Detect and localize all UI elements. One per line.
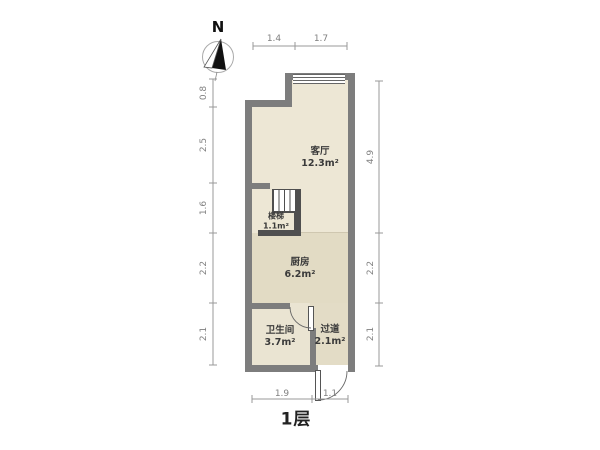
dimension-chain-bottom [252, 395, 348, 403]
wall-bathroom-top [245, 303, 290, 309]
room-area-kitchen: 6.2m² [285, 269, 316, 281]
stair-wall-bottom [258, 230, 301, 236]
room-area-bathroom: 3.7m² [265, 337, 296, 349]
dimension-chain-top [253, 42, 347, 50]
wall-stair-stub [252, 183, 270, 189]
room-name-hallway: 过道 [315, 324, 346, 336]
stair-treads [272, 189, 297, 213]
dim-bottom-2: 1.1 [323, 389, 337, 399]
room-name-living: 客厅 [301, 146, 339, 158]
entry-door-leaf [315, 370, 321, 401]
bathroom-door-leaf [308, 306, 314, 331]
room-name-bathroom: 卫生间 [265, 325, 296, 337]
floor-plan-canvas: 1.4 1.7 0.8 2.5 1.6 2.2 2.1 4.9 2.2 2.1 [0, 0, 600, 450]
room-name-stairs: 楼梯 [263, 212, 289, 222]
kitchen-boundary-line [301, 232, 348, 233]
north-arrow-icon [203, 39, 234, 81]
dim-bottom-1: 1.9 [275, 389, 290, 399]
dim-left-5: 2.1 [199, 327, 209, 341]
dim-right-1: 4.9 [366, 150, 376, 165]
dimension-chain-right [375, 81, 383, 366]
room-label-bathroom: 卫生间 3.7m² [265, 325, 296, 349]
window [293, 74, 345, 84]
room-label-kitchen: 厨房 6.2m² [285, 257, 316, 281]
room-label-hallway: 过道 2.1m² [315, 324, 346, 348]
room-area-living: 12.3m² [301, 158, 339, 170]
wall-bottom [245, 365, 318, 372]
dim-right-2: 2.2 [366, 261, 376, 275]
room-area-hallway: 2.1m² [315, 336, 346, 348]
dim-top-1: 1.4 [267, 34, 282, 44]
dim-left-2: 2.5 [199, 138, 209, 152]
dim-left-4: 2.2 [199, 261, 209, 275]
dim-right-3: 2.1 [366, 327, 376, 341]
dimension-chain-left [209, 79, 217, 365]
dim-top-2: 1.7 [314, 34, 328, 44]
dim-left-1: 0.8 [199, 86, 209, 101]
entry-door-arc [318, 371, 347, 400]
north-label: N [212, 18, 225, 36]
wall-left [245, 100, 252, 372]
floor-title: 1层 [281, 405, 312, 430]
room-label-living: 客厅 12.3m² [301, 146, 339, 170]
wall-step [245, 100, 292, 107]
dim-left-3: 1.6 [199, 201, 209, 216]
wall-right [348, 73, 355, 372]
room-label-stairs: 楼梯 1.1m² [263, 212, 289, 231]
room-name-kitchen: 厨房 [285, 257, 316, 269]
room-area-stairs: 1.1m² [263, 221, 289, 231]
